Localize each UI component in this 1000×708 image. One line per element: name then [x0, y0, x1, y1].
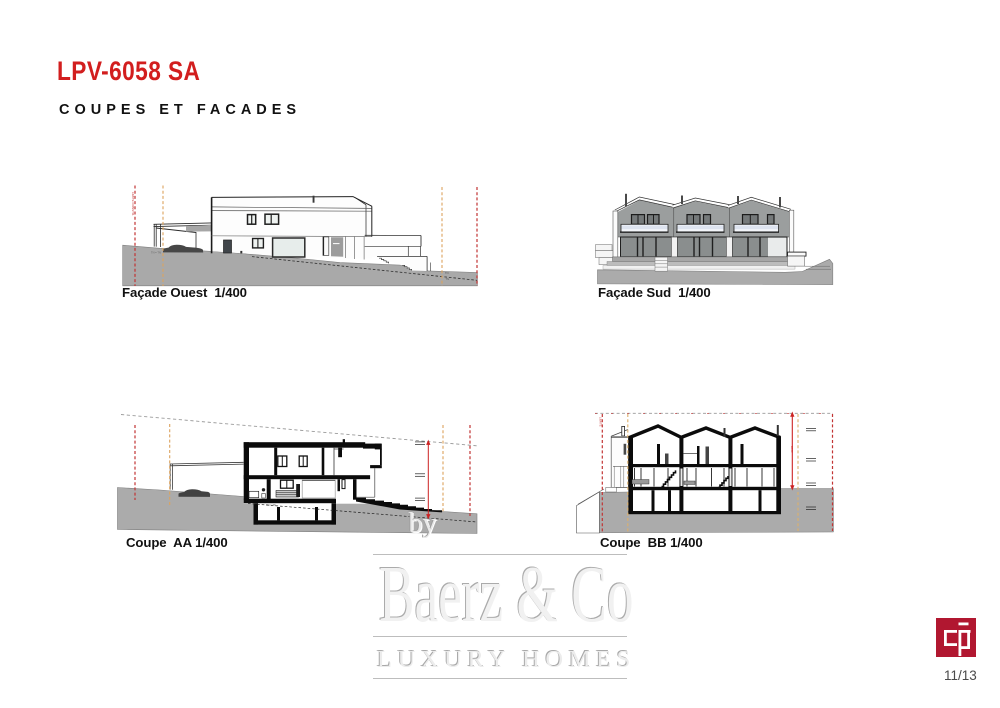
svg-text:18.00: 18.00 — [790, 446, 794, 453]
svg-text:TN = TN: TN = TN — [266, 503, 276, 507]
svg-text:TN: TN — [445, 271, 449, 275]
svg-text:LIMITE CONSTR.: LIMITE CONSTR. — [131, 192, 135, 216]
svg-text:TN = TN: TN = TN — [151, 251, 161, 255]
svg-text:LIMITE: LIMITE — [599, 417, 603, 427]
svg-text:TN: TN — [446, 277, 450, 281]
